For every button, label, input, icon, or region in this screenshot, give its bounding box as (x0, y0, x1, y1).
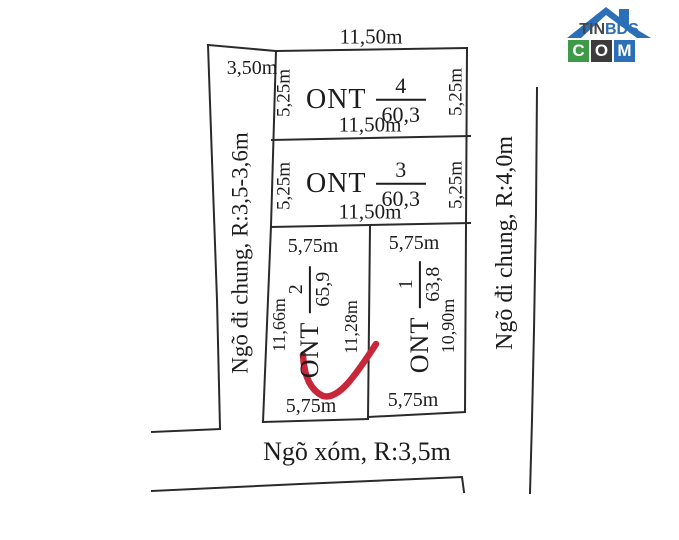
plot3-right-dimension: 5,25m (447, 161, 466, 209)
plot1-top-dimension: 5,75m (389, 233, 440, 253)
plot1-bottom-line (368, 412, 465, 417)
logo-com-letter-c: C (568, 40, 589, 62)
tinbds-logo: TINBDS C O M (566, 5, 652, 67)
plot4-code: ONT (306, 86, 367, 114)
logo-com-row: C O M (568, 40, 635, 62)
plot2-area: 65,9 (309, 266, 335, 313)
corridor-left-line (208, 45, 220, 428)
bottom-road-line (152, 477, 464, 492)
divider-plot4-plot3 (272, 136, 470, 140)
plot1-fraction: 1 63,8 (396, 261, 444, 308)
plot2-left-dimension: 11,66m (270, 298, 288, 352)
corridor-bottom-tick (152, 429, 220, 432)
divider-plot2-plot1 (368, 227, 370, 419)
plot2-bottom-line (263, 419, 368, 422)
plot3-code: ONT (306, 170, 367, 198)
dimension-label-corridor-width: 3,50m (227, 58, 278, 78)
plot3-bottom-dimension: 11,50m (339, 202, 402, 223)
plot1-code: ONT (407, 317, 433, 373)
plot1-right-dimension: 10,90m (439, 299, 457, 354)
plot2-bottom-dimension: 5,75m (286, 396, 337, 416)
plot2-fraction: 2 65,9 (286, 266, 334, 313)
right-road-line (530, 88, 537, 493)
plot3-lot-number: 3 (389, 158, 412, 183)
plot4-left-dimension: 5,25m (275, 69, 294, 117)
plot1-bottom-dimension: 5,75m (388, 390, 439, 410)
road-label-left: Ngõ đi chung, R:3,5-3,6m (229, 132, 252, 374)
plot4-bottom-dimension: 11,50m (339, 115, 402, 136)
plot4-lot-number: 4 (389, 74, 412, 99)
logo-com-letter-o: O (591, 40, 612, 62)
dimension-label-top: 11,50m (340, 27, 403, 48)
road-label-right: Ngõ đi chung, R:4,0m (493, 136, 517, 350)
land-plot-diagram: 11,50m 3,50m Ngõ đi chung, R:3,5-3,6m Ng… (0, 0, 679, 540)
plot2-code: ONT (297, 322, 323, 378)
logo-com-letter-m: M (614, 40, 635, 62)
logo-wordmark: TINBDS (566, 22, 652, 38)
corridor-top-line (208, 45, 276, 51)
plot1-lot-number: 1 (396, 273, 419, 295)
logo-bds-text: BDS (605, 21, 639, 38)
plot4-right-dimension: 5,25m (447, 68, 466, 116)
plot-label-ont2: ONT 2 65,9 (286, 266, 334, 378)
road-label-bottom: Ngõ xóm, R:3,5m (263, 439, 451, 465)
plot-label-ont1: ONT 1 63,8 (396, 261, 444, 373)
plot2-lot-number: 2 (286, 278, 309, 300)
plot2-top-dimension: 5,75m (288, 236, 339, 256)
logo-tin-text: TIN (579, 21, 605, 38)
plot2-right-dimension: 11,28m (342, 300, 360, 354)
plot3-left-dimension: 5,25m (275, 162, 294, 210)
